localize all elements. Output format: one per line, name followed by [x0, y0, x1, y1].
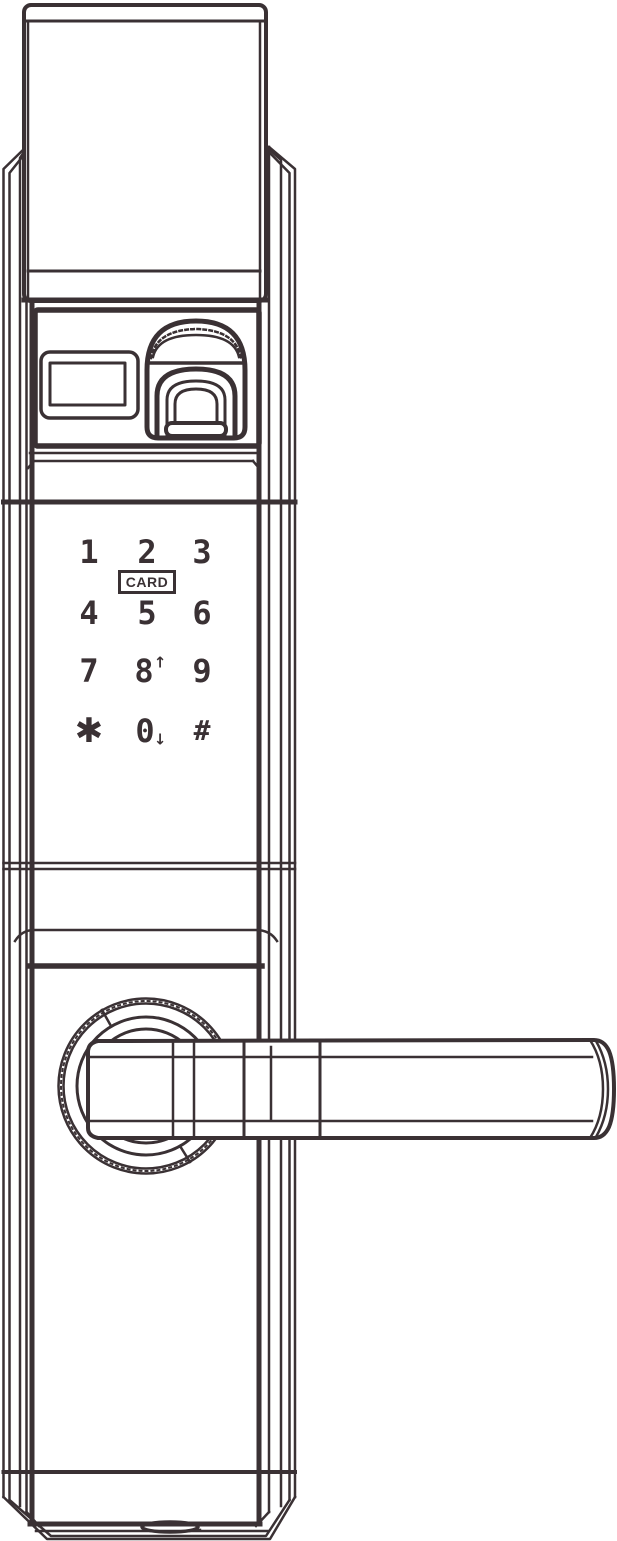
key-6[interactable]: 6: [180, 591, 224, 635]
key-2-label: 2: [137, 536, 156, 568]
key-2[interactable]: 2: [125, 530, 169, 574]
key-0-label: 0: [135, 715, 154, 747]
key-6-label: 6: [192, 597, 211, 629]
key-7-label: 7: [79, 655, 98, 687]
lock-line-art: [0, 0, 617, 1541]
key-hash[interactable]: #: [180, 709, 224, 753]
key-5[interactable]: 5: [125, 591, 169, 635]
key-4[interactable]: 4: [67, 591, 111, 635]
key-7[interactable]: 7: [67, 649, 111, 693]
key-5-label: 5: [137, 597, 156, 629]
key-3-label: 3: [192, 536, 211, 568]
bottom-port-slot[interactable]: [142, 1522, 200, 1532]
key-3[interactable]: 3: [180, 530, 224, 574]
key-9-label: 9: [192, 655, 211, 687]
key-8-label: 8: [134, 655, 153, 687]
handle-lever[interactable]: [88, 1040, 614, 1138]
smart-lock-diagram: 1 2 3 CARD 4 5 6 7 8 ↑ 9 ✱ 0 ↓ #: [0, 0, 617, 1541]
up-arrow-icon: ↑: [154, 656, 167, 671]
card-label-text: CARD: [126, 574, 168, 590]
key-star[interactable]: ✱: [67, 709, 111, 753]
key-9[interactable]: 9: [180, 649, 224, 693]
key-4-label: 4: [79, 597, 98, 629]
key-star-label: ✱: [75, 714, 104, 748]
top-sensor-module: [4, 310, 296, 502]
down-arrow-icon: ↓: [154, 733, 167, 748]
top-cover-block: [24, 5, 266, 301]
key-1[interactable]: 1: [67, 530, 111, 574]
key-hash-label: #: [194, 717, 211, 745]
key-1-label: 1: [79, 536, 98, 568]
